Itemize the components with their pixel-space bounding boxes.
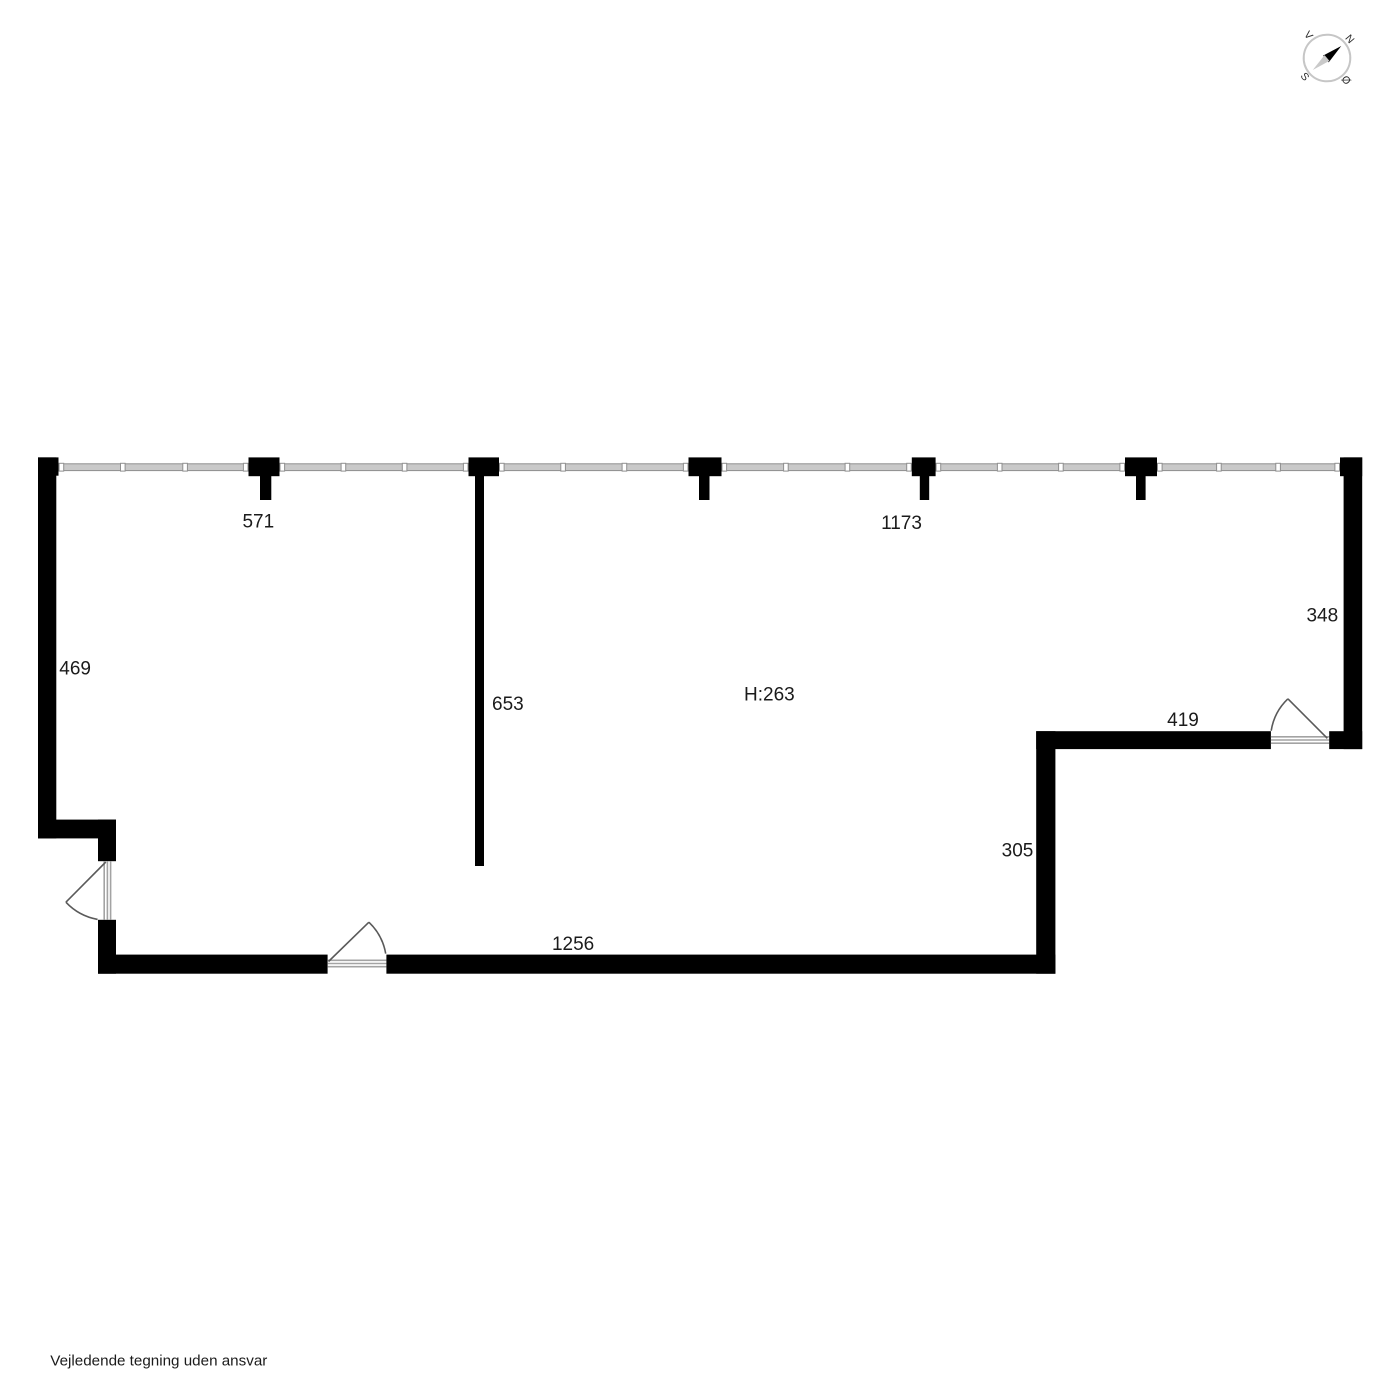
svg-text:1173: 1173 [881, 513, 922, 534]
svg-text:1256: 1256 [552, 934, 594, 955]
svg-text:348: 348 [1306, 606, 1338, 627]
svg-text:469: 469 [59, 659, 91, 680]
svg-text:Vejledende tegning uden ansvar: Vejledende tegning uden ansvar [50, 1352, 267, 1369]
svg-text:653: 653 [492, 694, 524, 715]
svg-text:305: 305 [1002, 841, 1034, 862]
svg-text:419: 419 [1167, 710, 1199, 731]
svg-text:H:263: H:263 [744, 685, 795, 706]
svg-text:571: 571 [242, 512, 274, 533]
svg-text:S: S [1298, 70, 1312, 83]
